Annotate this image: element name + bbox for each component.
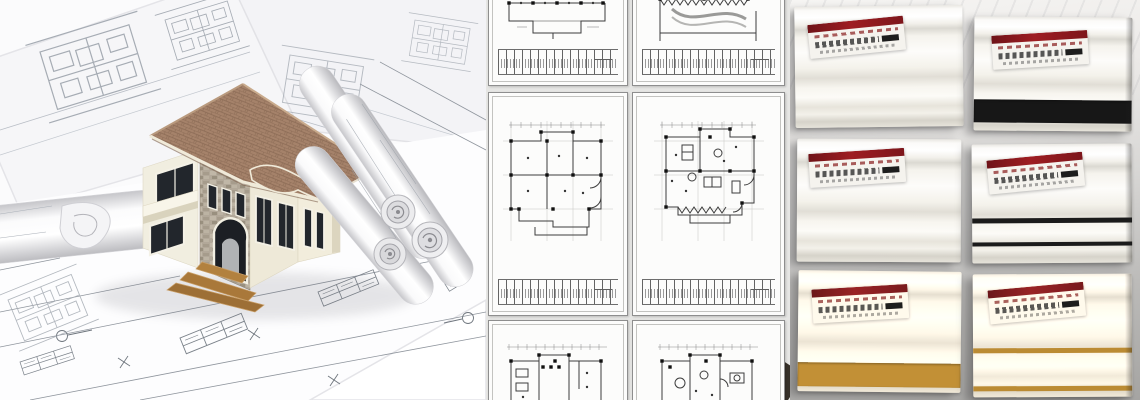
product-label xyxy=(807,16,906,59)
label-logo-block xyxy=(882,34,900,42)
molding-stripe xyxy=(974,100,1132,124)
label-logo-block xyxy=(885,302,902,309)
label-logo-block xyxy=(882,166,899,173)
floorplan-drawing xyxy=(646,111,772,279)
floorplan-drawing xyxy=(495,339,621,400)
molding-stripe xyxy=(972,241,1132,247)
house-blueprint-illustration xyxy=(0,0,486,400)
architecture-collage-banner: Architecture banner collage: 3D house mo… xyxy=(0,0,1140,400)
panel-floorplan-sheets xyxy=(486,0,790,400)
sample-end-shadow xyxy=(1125,274,1133,397)
floorplan-sheet xyxy=(632,320,785,400)
dimension-strip xyxy=(642,49,775,75)
molding-stripe xyxy=(972,217,1132,223)
label-text-line xyxy=(820,175,896,183)
sample-end-shadow xyxy=(1125,143,1133,262)
panel-house-blueprints-photo xyxy=(0,0,486,400)
molding-sample xyxy=(974,16,1133,131)
dimension-strip xyxy=(498,49,618,75)
molding-sample xyxy=(797,139,962,263)
molding-stripe xyxy=(973,386,1132,392)
product-label xyxy=(991,30,1089,70)
label-text-line xyxy=(1003,58,1079,66)
molding-sample xyxy=(973,274,1133,398)
floorplan-drawing xyxy=(495,111,621,279)
floorplan-sheet xyxy=(488,0,628,86)
product-label xyxy=(987,282,1086,325)
molding-sample xyxy=(794,5,963,128)
floorplan-drawing xyxy=(646,0,772,49)
product-label xyxy=(811,284,909,324)
floorplan-sheet xyxy=(488,92,628,316)
sample-end-shadow xyxy=(1124,18,1132,132)
floorplan-drawing xyxy=(495,0,621,49)
label-logo-block xyxy=(1061,170,1078,178)
floorplan-drawing xyxy=(646,339,772,400)
floorplan-sheet xyxy=(488,320,628,400)
dimension-strip xyxy=(498,279,618,305)
label-text-line xyxy=(823,312,899,320)
molding-sample xyxy=(797,270,961,393)
product-label xyxy=(808,148,906,188)
label-logo-block xyxy=(1065,48,1082,55)
floorplan-sheet xyxy=(632,92,785,316)
panel-molding-samples-photo xyxy=(790,0,1140,400)
dimension-strip xyxy=(642,279,775,305)
molding-stripe xyxy=(797,362,960,388)
floorplan-sheet xyxy=(632,0,785,86)
molding-sample xyxy=(972,143,1133,263)
product-label xyxy=(986,152,1085,195)
molding-stripe xyxy=(973,347,1132,353)
label-logo-block xyxy=(1062,300,1079,308)
